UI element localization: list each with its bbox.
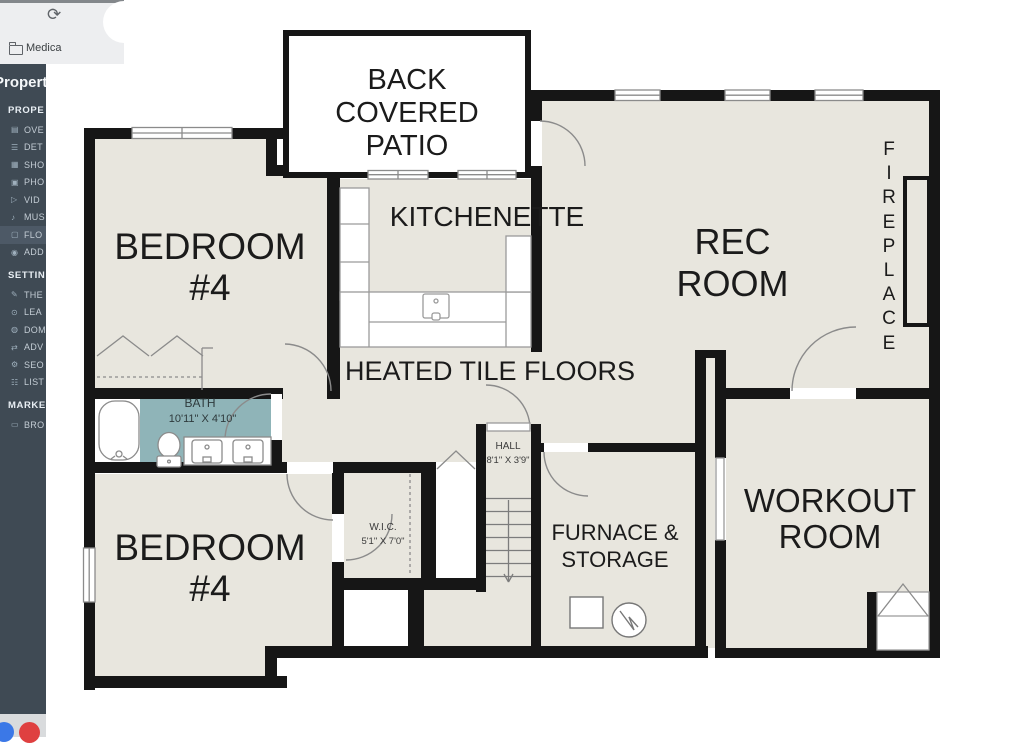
fireplace-label: F I R E P L A C E <box>878 138 900 356</box>
wall <box>715 648 940 658</box>
wall <box>265 646 708 658</box>
wall <box>84 676 287 688</box>
wall <box>715 540 726 658</box>
wall <box>84 128 95 690</box>
hall-label: HALL <box>482 441 534 453</box>
workout-label: WORKOUT ROOM <box>730 483 930 555</box>
bedroom4-bottom-label: BEDROOM #4 <box>95 527 325 609</box>
bath-dims: 10'11" X 4'10" <box>140 413 265 426</box>
furnace-label: FURNACE & STORAGE <box>540 519 690 573</box>
wall <box>332 462 344 652</box>
wic-dims: 5'1" X 7'0" <box>348 537 418 548</box>
wall <box>531 443 706 452</box>
wall <box>695 350 706 658</box>
rec-room-label: REC ROOM <box>630 221 835 305</box>
kitchenette-label: KITCHENETTE <box>362 201 612 233</box>
bedroom4-bottom-floor <box>95 648 265 676</box>
heated-tile-label: HEATED TILE FLOORS <box>340 356 640 387</box>
wall <box>408 586 424 650</box>
wall <box>84 128 283 139</box>
tub-alcove <box>95 399 140 462</box>
patio-label: BACK COVERED PATIO <box>292 64 522 163</box>
wall <box>531 90 940 101</box>
wic-label: W.I.C. <box>352 522 414 534</box>
bath-label: BATH <box>150 397 250 411</box>
hall-dims: 8'1" X 3'9" <box>478 456 538 467</box>
wall <box>421 462 436 590</box>
wall <box>265 646 277 688</box>
wall <box>715 352 726 458</box>
wall <box>84 462 434 473</box>
lower-corridor-floor <box>424 590 531 646</box>
floorplan-canvas: BACK COVERED PATIO KITCHENETTE REC ROOM … <box>0 0 1024 737</box>
wall <box>715 388 940 399</box>
wall <box>327 165 340 399</box>
wall <box>271 388 282 470</box>
bedroom4-top-label: BEDROOM #4 <box>95 226 325 308</box>
fireplace-box <box>903 176 931 327</box>
